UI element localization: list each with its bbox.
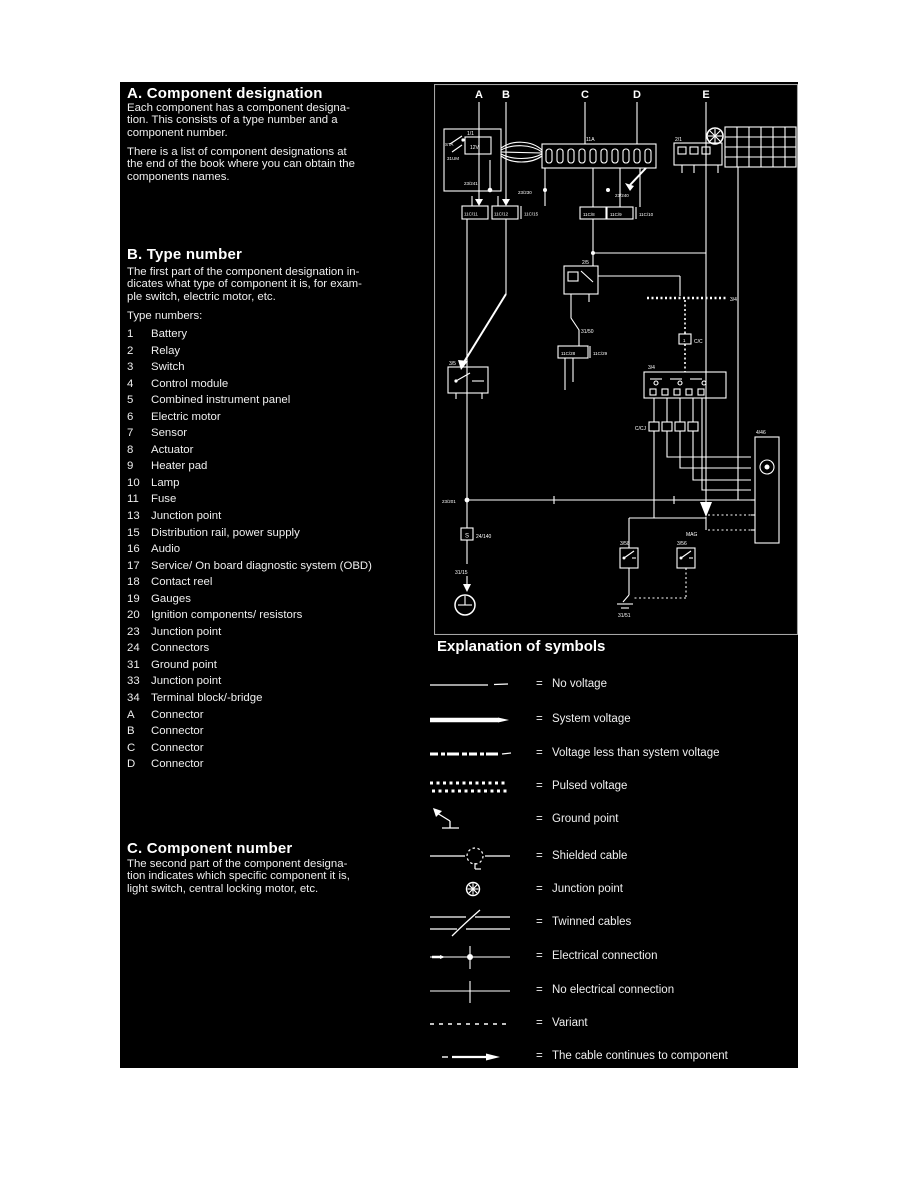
ccj-label: C/CJ [635, 426, 647, 432]
type-label: Ignition components/ resistors [151, 609, 302, 621]
list-item: 1Battery [127, 328, 372, 345]
less-than-system-voltage-line-icon [428, 740, 516, 768]
text-line: Each component has a component designa- [127, 102, 350, 114]
cc-num-label: 1 [683, 338, 686, 343]
text-line: The first part of the component designat… [127, 266, 362, 278]
symbol-label: Junction point [552, 883, 623, 895]
ground-point-icon [428, 806, 516, 836]
electrical-connection-icon [428, 943, 516, 971]
type-label: Connector [151, 709, 204, 721]
symbol-label: Pulsed voltage [552, 780, 627, 792]
list-item: 5Combined instrument panel [127, 394, 372, 411]
list-item: 19Gauges [127, 593, 372, 610]
type-number: 23 [127, 626, 151, 638]
switch-3-58-label: 3/58 [620, 541, 630, 547]
column-label-d: D [633, 89, 641, 101]
type-label: Combined instrument panel [151, 394, 290, 406]
text-line: tion indicates which specific component … [127, 870, 350, 882]
section-c-paragraph: The second part of the component designa… [127, 858, 350, 895]
equals-sign: = [536, 1050, 543, 1062]
type-number: 15 [127, 527, 151, 539]
wire-bundle [501, 142, 542, 162]
type-number: 16 [127, 543, 151, 555]
text-line: components names. [127, 171, 355, 183]
junction-23-241-label: 23/241 [464, 181, 478, 186]
bottom-rail: 23/201 [442, 167, 755, 504]
component-3-4-label: 3/4 [648, 365, 655, 371]
type-label: Terminal block/-bridge [151, 692, 262, 704]
type-label: Lamp [151, 477, 180, 489]
type-label: Gauges [151, 593, 191, 605]
column-label-b: B [502, 89, 510, 101]
type-number: B [127, 725, 151, 737]
relay-2-5-label: 2/5 [582, 260, 589, 266]
section-a-paragraph-1: Each component has a component designa- … [127, 102, 350, 139]
type-label: Relay [151, 345, 180, 357]
list-item: 31Ground point [127, 659, 372, 676]
type-numbers-list: 1Battery 2Relay 3Switch 4Control module … [127, 328, 372, 775]
left-wires [458, 219, 506, 500]
terminal-24-140-label: 24/140 [476, 534, 492, 540]
type-number: 8 [127, 444, 151, 456]
connector-11c9-label: 11C/9 [610, 212, 622, 217]
switch-3-5: 3/5 [448, 361, 488, 399]
shielded-cable-icon [428, 843, 516, 871]
list-item: 20Ignition components/ resistors [127, 609, 372, 626]
list-item: 17Service/ On board diagnostic system (O… [127, 560, 372, 577]
text-line: There is a list of component designation… [127, 146, 355, 158]
list-item: 34Terminal block/-bridge [127, 692, 372, 709]
s-box-label: S [465, 534, 469, 540]
list-item: CConnector [127, 742, 372, 759]
type-label: Connector [151, 742, 204, 754]
type-label: Audio [151, 543, 180, 555]
junction-23-230-label: 23/230 [518, 190, 532, 195]
type-number: 34 [127, 692, 151, 704]
manual-page: A. Component designation Each component … [0, 0, 918, 1188]
no-electrical-connection-icon [428, 977, 516, 1005]
switch-3-5-label: 3/5 [449, 361, 456, 367]
symbol-label: Variant [552, 1017, 588, 1029]
type-label: Service/ On board diagnostic system (OBD… [151, 560, 372, 572]
list-item: 15Distribution rail, power supply [127, 527, 372, 544]
cc-label: C/C [694, 339, 703, 345]
type-number: 4 [127, 378, 151, 390]
list-item: 8Actuator [127, 444, 372, 461]
cable-continues-arrow-icon [428, 1043, 516, 1071]
type-label: Heater pad [151, 460, 207, 472]
type-number: 10 [127, 477, 151, 489]
wiring-diagram-svg: A B C D E 1/1 12V [434, 84, 798, 635]
symbol-label: Twinned cables [552, 916, 631, 928]
symbols-section-title: Explanation of symbols [437, 638, 605, 655]
symbol-label: Voltage less than system voltage [552, 747, 720, 759]
symbol-label: System voltage [552, 713, 631, 725]
type-label: Control module [151, 378, 228, 390]
type-number: 1 [127, 328, 151, 340]
type-label: Electric motor [151, 411, 221, 423]
symbol-row: = System voltage [428, 706, 793, 736]
symbol-row: = Shielded cable [428, 843, 793, 873]
type-number: 13 [127, 510, 151, 522]
list-item: 33Junction point [127, 675, 372, 692]
list-item: 10Lamp [127, 477, 372, 494]
column-label-a: A [475, 89, 483, 101]
equals-sign: = [536, 813, 543, 825]
component-2-1-label: 2/1 [675, 137, 682, 143]
list-item: 24Connectors [127, 642, 372, 659]
connector-11c12-label: 11C/12 [494, 212, 509, 217]
symbol-label: No voltage [552, 678, 607, 690]
list-item: 7Sensor [127, 427, 372, 444]
symbol-label: The cable continues to component [552, 1050, 728, 1062]
section-a-title: A. Component designation [127, 85, 323, 102]
type-number: 7 [127, 427, 151, 439]
symbol-row: = Electrical connection [428, 943, 793, 973]
symbol-row: = Variant [428, 1010, 793, 1040]
text-line: component number. [127, 127, 350, 139]
list-item: 16Audio [127, 543, 372, 560]
equals-sign: = [536, 950, 543, 962]
type-numbers-intro: Type numbers: [127, 310, 202, 322]
connector-11c28-label: 11C/28 [561, 351, 576, 356]
wiring-diagram: A B C D E 1/1 12V [434, 84, 798, 635]
ground-31-50-label: 31/50 [581, 329, 594, 335]
list-item: 18Contact reel [127, 576, 372, 593]
switch-3-56: 3/56 [632, 541, 695, 598]
twinned-cables-icon [428, 909, 516, 937]
component-4-46-label: 4/46 [756, 430, 766, 436]
type-label: Connector [151, 725, 204, 737]
column-wires [475, 102, 712, 517]
type-number: 3 [127, 361, 151, 373]
type-number: 20 [127, 609, 151, 621]
list-item: DConnector [127, 758, 372, 775]
list-item: 6Electric motor [127, 411, 372, 428]
symbol-row: = Twinned cables [428, 909, 793, 939]
type-label: Connector [151, 758, 204, 770]
connector-11c10-label: 11C/10 [639, 212, 654, 217]
equals-sign: = [536, 713, 543, 725]
symbol-row: = No electrical connection [428, 977, 793, 1007]
type-label: Distribution rail, power supply [151, 527, 300, 539]
type-label: Sensor [151, 427, 187, 439]
type-number: 19 [127, 593, 151, 605]
type-label: Contact reel [151, 576, 212, 588]
list-item: AConnector [127, 709, 372, 726]
sta-label: STA [445, 142, 453, 147]
equals-sign: = [536, 678, 543, 690]
connector-11c8-label: 11C/8 [583, 212, 595, 217]
distribution-rail: 3/4 1 C/C [598, 276, 737, 372]
type-number: 9 [127, 460, 151, 472]
column-label-e: E [702, 89, 709, 101]
relay-2-5: 2/5 31/50 [564, 219, 706, 346]
battery-block: 1/1 12V STA 31UM 23/241 [444, 129, 501, 192]
list-item: 4Control module [127, 378, 372, 395]
no-voltage-line-icon [428, 671, 516, 699]
type-number: 5 [127, 394, 151, 406]
pulsed-voltage-line-icon [428, 773, 516, 801]
symbol-label: Electrical connection [552, 950, 657, 962]
list-item: 13Junction point [127, 510, 372, 527]
connector-11c29-label: 11C/29 [593, 351, 608, 356]
type-label: Battery [151, 328, 187, 340]
color-code-table [725, 127, 796, 167]
equals-sign: = [536, 1017, 543, 1029]
type-label: Ground point [151, 659, 217, 671]
component-4-46: 4/46 [751, 430, 779, 543]
type-label: Actuator [151, 444, 193, 456]
ground-chain: S 24/140 31/15 [455, 500, 492, 615]
ground-31-15-label: 31/15 [455, 570, 468, 576]
text-line: tion. This consists of a type number and… [127, 114, 350, 126]
type-label: Switch [151, 361, 185, 373]
um-label: 31UM [447, 156, 459, 161]
symbol-row: = Junction point [428, 876, 793, 906]
type-number: 6 [127, 411, 151, 423]
text-line: ple switch, electric motor, etc. [127, 291, 362, 303]
list-item: 11Fuse [127, 493, 372, 510]
type-number: C [127, 742, 151, 754]
connector-row-1: 11C/11 11C/12 11C/15 [462, 196, 539, 219]
column-label-c: C [581, 89, 589, 101]
mag-label: MAG [686, 532, 698, 538]
fuse-box-label: 11A [586, 137, 595, 143]
type-number: 33 [127, 675, 151, 687]
list-item: 23Junction point [127, 626, 372, 643]
text-line: the end of the book where you can obtain… [127, 158, 355, 170]
connector-row-3: 11C/28 11C/29 [558, 346, 608, 390]
switch-3-56-label: 3/56 [677, 541, 687, 547]
junction-symbol-top [707, 128, 723, 144]
list-item: 2Relay [127, 345, 372, 362]
connector-11c11-label: 11C/11 [464, 212, 478, 217]
variant-line-icon [428, 1010, 516, 1038]
symbol-row: = Pulsed voltage [428, 773, 793, 803]
component-3-4: 3/4 [644, 365, 726, 398]
connector-11c15-label: 11C/15 [524, 212, 539, 217]
equals-sign: = [536, 780, 543, 792]
symbol-label: No electrical connection [552, 984, 674, 996]
symbol-row: = The cable continues to component [428, 1043, 793, 1073]
type-number: 17 [127, 560, 151, 572]
section-a-paragraph-2: There is a list of component designation… [127, 146, 355, 183]
type-number: 11 [127, 493, 151, 505]
junction-23-201-label: 23/201 [442, 499, 456, 504]
text-line: light switch, central locking motor, etc… [127, 883, 350, 895]
type-label: Junction point [151, 626, 221, 638]
section-b-title: B. Type number [127, 246, 242, 263]
ground-31-51-label: 31/51 [618, 613, 631, 619]
equals-sign: = [536, 916, 543, 928]
symbol-row: = Voltage less than system voltage [428, 740, 793, 770]
section-c-title: C. Component number [127, 840, 292, 857]
junction-labels: 23/230 23/240 [518, 168, 646, 206]
list-item: 3Switch [127, 361, 372, 378]
junction-23-240-label: 23/240 [615, 193, 629, 198]
symbol-row: = No voltage [428, 671, 793, 701]
list-item: BConnector [127, 725, 372, 742]
type-number: 18 [127, 576, 151, 588]
symbol-row: = Ground point [428, 806, 793, 836]
battery-voltage-label: 12V [470, 145, 480, 151]
text-line: The second part of the component designa… [127, 858, 350, 870]
equals-sign: = [536, 850, 543, 862]
equals-sign: = [536, 883, 543, 895]
symbol-label: Ground point [552, 813, 619, 825]
type-label: Junction point [151, 510, 221, 522]
scanned-page-panel: A. Component designation Each component … [120, 82, 798, 1068]
type-number: 2 [127, 345, 151, 357]
type-number: A [127, 709, 151, 721]
type-label: Junction point [151, 675, 221, 687]
system-voltage-line-icon [428, 706, 516, 734]
junction-point-icon [428, 876, 516, 904]
symbol-label: Shielded cable [552, 850, 627, 862]
type-label: Connectors [151, 642, 209, 654]
rail-3-4-label: 3/4 [730, 297, 737, 303]
fuse-box: 11A [542, 137, 656, 168]
type-label: Fuse [151, 493, 176, 505]
type-number: 31 [127, 659, 151, 671]
equals-sign: = [536, 747, 543, 759]
equals-sign: = [536, 984, 543, 996]
type-number: D [127, 758, 151, 770]
section-b-paragraph: The first part of the component designat… [127, 266, 362, 303]
battery-label: 1/1 [467, 131, 474, 137]
type-number: 24 [127, 642, 151, 654]
list-item: 9Heater pad [127, 460, 372, 477]
text-line: dicates what type of component it is, fo… [127, 278, 362, 290]
